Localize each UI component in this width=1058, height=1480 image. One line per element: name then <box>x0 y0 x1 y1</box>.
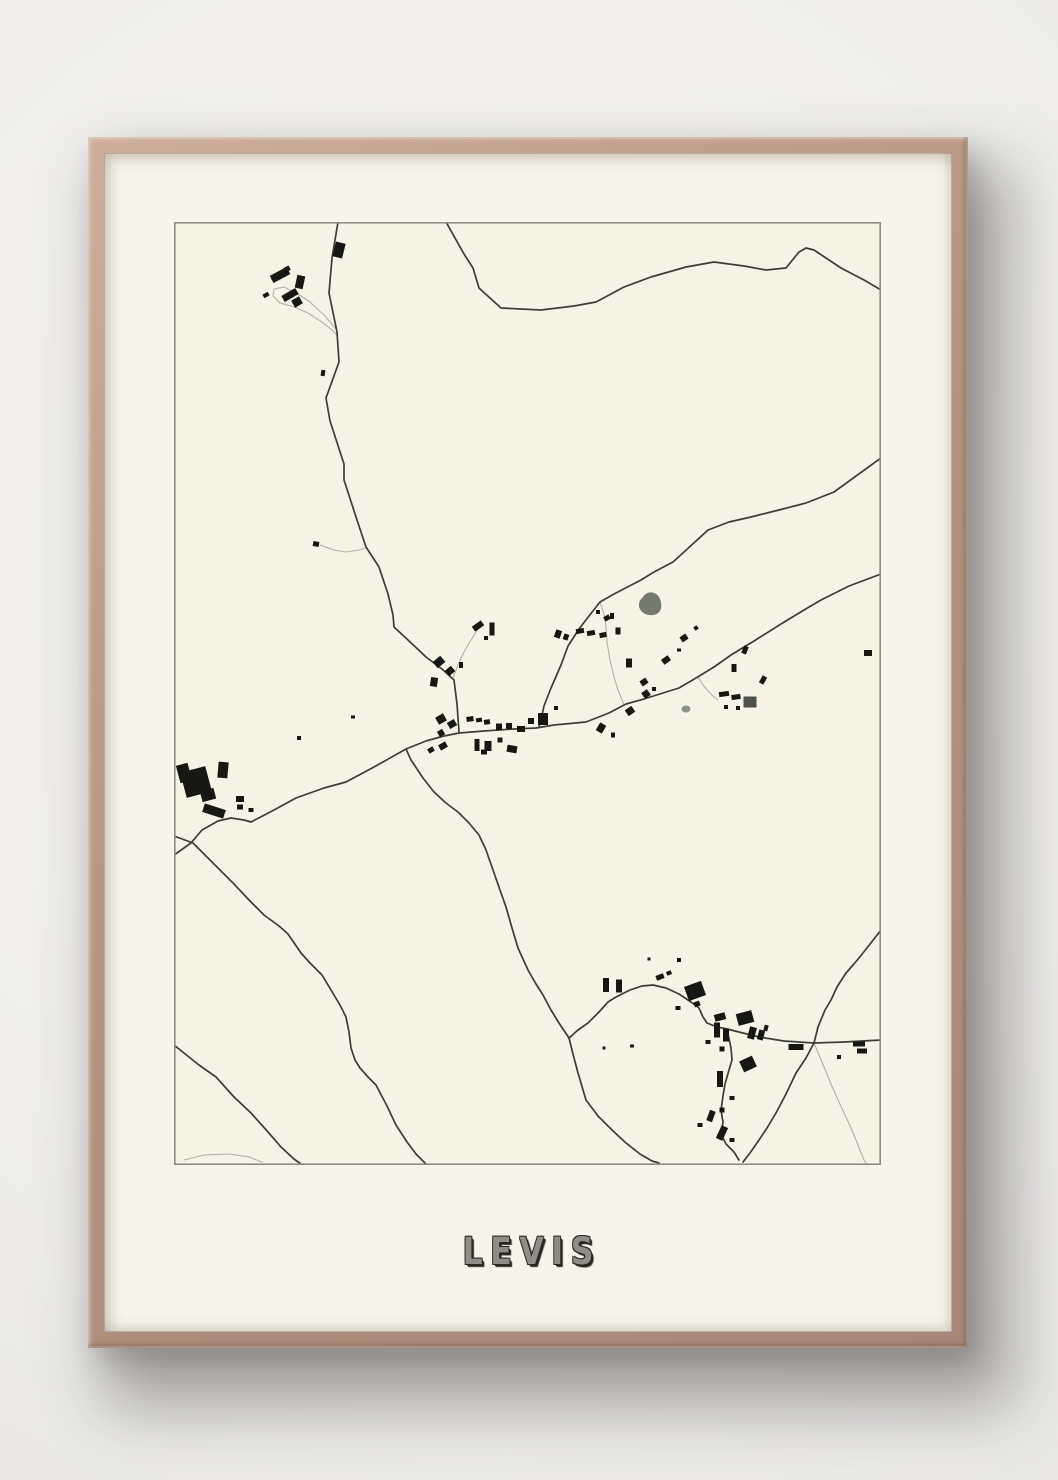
building <box>730 1096 735 1100</box>
building <box>466 716 474 722</box>
building <box>496 724 502 731</box>
map-canvas <box>174 222 881 1165</box>
building <box>249 808 254 812</box>
poster-mat: LEVIS <box>104 153 952 1332</box>
poster-title: LEVIS <box>168 1233 889 1270</box>
building <box>517 726 525 732</box>
building <box>611 733 615 738</box>
building <box>484 636 488 640</box>
building <box>730 1138 735 1142</box>
building <box>677 958 681 962</box>
building <box>321 370 326 376</box>
building <box>706 1040 711 1044</box>
map-area <box>174 222 881 1165</box>
poster-frame: LEVIS <box>88 137 968 1348</box>
building <box>237 805 243 810</box>
building <box>736 706 740 710</box>
building <box>720 1108 725 1113</box>
building <box>475 739 480 751</box>
building <box>720 1047 725 1052</box>
building <box>676 1006 681 1010</box>
building <box>481 750 487 755</box>
building <box>717 1071 723 1087</box>
building <box>616 980 622 993</box>
building <box>506 723 512 729</box>
building <box>677 649 681 652</box>
building <box>430 677 438 687</box>
building <box>554 706 558 710</box>
building <box>603 1047 606 1050</box>
building <box>236 796 244 802</box>
building <box>652 687 656 691</box>
building <box>630 1045 634 1048</box>
building <box>864 650 872 656</box>
building <box>484 719 491 725</box>
building <box>698 1123 703 1127</box>
building <box>538 713 548 725</box>
building <box>596 610 600 614</box>
building <box>610 613 614 619</box>
building <box>732 664 737 672</box>
building <box>459 662 463 668</box>
building <box>626 659 632 668</box>
building <box>723 1029 729 1042</box>
building <box>217 762 228 779</box>
gray-patch <box>682 706 691 713</box>
building <box>351 716 355 719</box>
building <box>648 958 651 961</box>
building <box>616 628 621 635</box>
map-background <box>174 222 881 1165</box>
building <box>789 1044 804 1050</box>
building <box>603 978 609 992</box>
building-gray <box>744 697 757 708</box>
building <box>490 623 495 636</box>
building <box>297 736 301 740</box>
building <box>498 738 503 743</box>
building <box>476 718 482 723</box>
building <box>837 1055 841 1059</box>
building <box>714 1023 720 1038</box>
building <box>853 1042 865 1047</box>
building <box>857 1049 867 1054</box>
building <box>313 541 320 547</box>
building <box>724 705 728 709</box>
building <box>528 718 534 724</box>
